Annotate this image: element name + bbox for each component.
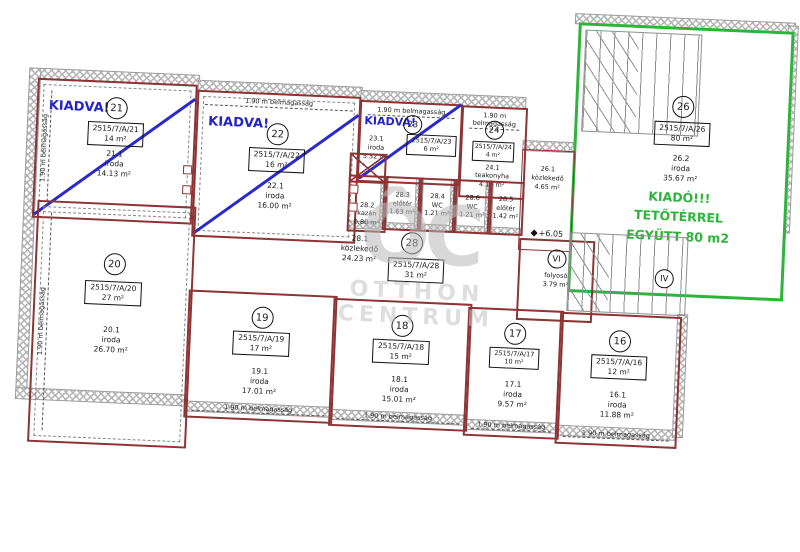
parcel-id: 2515/7/A/16 (596, 356, 643, 368)
staircase-upper (581, 30, 702, 137)
door-symbol (349, 184, 358, 193)
height-note: 1.90 m belmagasság (563, 428, 669, 442)
room-area: 1.63 m² (389, 208, 415, 218)
parcel-area: 10 m² (494, 357, 534, 367)
unit-number-badge: 24 (484, 120, 504, 140)
parcel-id: 2515/7/A/21 (93, 123, 140, 135)
level-marker: +6.05 (531, 228, 563, 238)
room-area: 16.00 m² (257, 200, 292, 212)
level-value: +6.05 (538, 229, 563, 239)
room-area: 3.79 m² (542, 280, 568, 290)
room-info: 21.1 iroda 14.13 m² (97, 148, 132, 180)
door-symbol (348, 202, 357, 211)
parcel-box: 2515/7/A/17 10 m² (489, 347, 540, 370)
parcel-id: 2515/7/A/18 (378, 341, 425, 353)
room-area: 1.21 m² (424, 209, 450, 219)
room-info: 26.1 közlekedő 4.65 m² (531, 164, 564, 192)
door-symbol (182, 185, 191, 194)
room-area: 9.57 m² (497, 399, 527, 410)
height-note: 1.90 m belmagasság (471, 420, 551, 432)
room-area: 11.88 m² (599, 409, 634, 421)
parcel-box: 2515/7/A/22 16 m² (248, 147, 305, 173)
stair-winders (567, 233, 610, 312)
unit-number-badge: 17 (504, 322, 527, 345)
level-diamond-icon (531, 229, 538, 236)
room-info: 22.1 iroda 16.00 m² (257, 180, 292, 212)
unit-20: 1.90 m belmagasság 20 2515/7/A/20 27 m² … (27, 200, 196, 449)
room-area: 0.80 m² (353, 218, 379, 228)
parcel-box: 2515/7/A/24 4 m² (471, 141, 515, 162)
room-area: 35.67 m² (663, 173, 698, 185)
room-area: 14.13 m² (97, 168, 132, 180)
status-rented-label: KIADVA! (208, 114, 270, 132)
parcel-id: 2515/7/A/22 (254, 149, 301, 161)
parcel-area: 6 m² (411, 145, 451, 155)
parcel-box: 2515/7/A/26 80 m² (654, 121, 711, 147)
height-note: 1.90 m belmagasság (336, 410, 459, 424)
corridor-number-badge: VI (547, 249, 567, 269)
room-area: 1.21 m² (459, 211, 485, 221)
unit-number-badge: 18 (390, 314, 413, 337)
parcel-area: 80 m² (659, 133, 706, 145)
stair-number-badge: IV (654, 269, 674, 289)
parcel-area: 16 m² (253, 159, 300, 171)
floor-plan: KIADVA! 1.90 m belmagasság 21 2515/7/A/2… (3, 30, 777, 493)
parcel-box: 2515/7/A/18 15 m² (372, 339, 429, 365)
room-info: 17.1 iroda 9.57 m² (497, 379, 528, 411)
shaft-crossed-box (349, 152, 387, 184)
parcel-id: 2515/7/A/28 (393, 259, 440, 271)
unit-19: 1.90 m belmagasság 19 2515/7/A/19 17 m² … (183, 290, 337, 424)
unit-number-badge: 20 (103, 253, 126, 276)
parcel-box: 2515/7/A/16 12 m² (590, 354, 647, 380)
unit-18: 1.90 m belmagasság 18 2515/7/A/18 15 m² … (328, 298, 472, 432)
parcel-box: 2515/7/A/21 14 m² (87, 121, 144, 147)
parcel-area: 12 m² (595, 366, 642, 378)
parcel-box: 2515/7/A/19 17 m² (233, 331, 290, 357)
parcel-id: 2515/7/A/26 (659, 123, 706, 135)
staircase-main: IV (566, 232, 688, 316)
room-area: 24.23 m² (340, 253, 378, 265)
room-info: 18.1 iroda 15.01 m² (381, 374, 416, 406)
room-info: 16.1 iroda 11.88 m² (599, 389, 634, 421)
status-rented-label: KIADVA! (48, 98, 110, 116)
parcel-box: 2515/7/A/20 27 m² (85, 280, 142, 306)
room-info: 28.1 közlekedő 24.23 m² (340, 233, 379, 265)
room-area: 26.70 m² (93, 344, 128, 356)
parcel-id: 2515/7/A/19 (238, 333, 285, 345)
room-info: 20.1 iroda 26.70 m² (93, 324, 128, 356)
parcel-box: 2515/7/A/23 6 m² (406, 134, 457, 157)
unit-number-badge: 19 (251, 306, 274, 329)
room-area: 1.42 m² (492, 212, 518, 222)
unit-number-badge: 28 (401, 232, 424, 255)
unit-number-badge: 16 (609, 330, 632, 353)
room-info: folyosó 3.79 m² (542, 271, 568, 290)
parcel-area: 15 m² (377, 351, 424, 363)
room-info: 26.2 iroda 35.67 m² (663, 153, 698, 185)
room-area: 17.01 m² (242, 386, 277, 398)
room-info: 19.1 iroda 17.01 m² (242, 365, 277, 397)
height-note: 1.90 m belmagasság (192, 402, 325, 417)
parcel-box: 2515/7/A/28 31 m² (387, 257, 444, 283)
unit-16: 1.90 m belmagasság 16 2515/7/A/16 12 m² … (554, 312, 682, 449)
unit-17: 1.90 m belmagasság 17 2515/7/A/17 10 m² … (463, 307, 565, 440)
room-area: 4.65 m² (531, 182, 564, 192)
room-area: 15.01 m² (381, 394, 416, 406)
door-symbol (183, 165, 192, 174)
parcel-id: 2515/7/A/20 (90, 282, 137, 294)
stair-winders (582, 31, 639, 133)
